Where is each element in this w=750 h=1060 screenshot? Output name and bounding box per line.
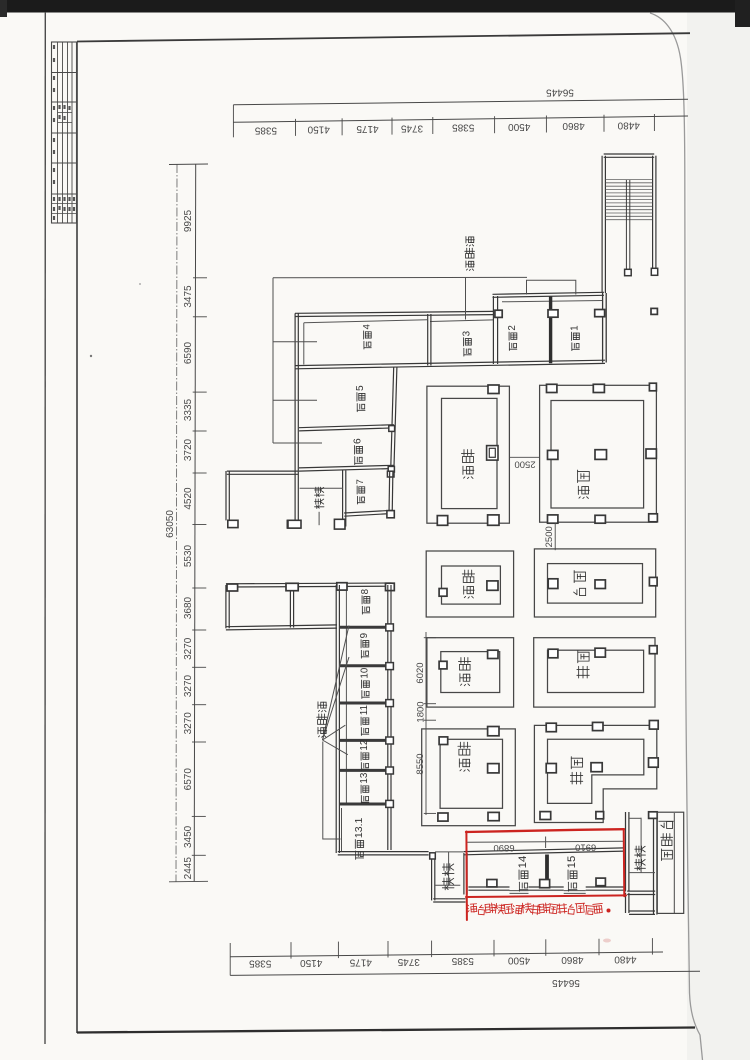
svg-text:3: 3 (462, 330, 473, 336)
svg-text:5385: 5385 (249, 958, 272, 969)
svg-text:6890: 6890 (493, 842, 514, 853)
svg-text:4520: 4520 (183, 487, 194, 510)
svg-text:5385: 5385 (452, 122, 475, 133)
svg-text:13: 13 (359, 772, 370, 783)
svg-text:6910: 6910 (575, 842, 596, 853)
svg-text:2500: 2500 (514, 459, 535, 470)
svg-text:14: 14 (517, 856, 529, 869)
svg-text:6570: 6570 (183, 768, 194, 791)
svg-text:4480: 4480 (617, 119, 640, 130)
svg-text:4860: 4860 (561, 954, 584, 965)
svg-text:6590: 6590 (183, 341, 194, 364)
svg-text:1: 1 (570, 325, 581, 330)
svg-text:6020: 6020 (415, 662, 426, 683)
svg-text:2445: 2445 (183, 857, 194, 880)
svg-text:4500: 4500 (508, 121, 531, 132)
svg-text:3680: 3680 (183, 596, 194, 619)
svg-text:3270: 3270 (183, 674, 194, 697)
svg-text:6: 6 (353, 438, 364, 444)
svg-text:3450: 3450 (183, 825, 194, 848)
svg-text:12: 12 (359, 740, 370, 751)
svg-text:9: 9 (359, 633, 370, 638)
svg-text:4860: 4860 (562, 120, 585, 131)
svg-text:3335: 3335 (183, 398, 194, 421)
svg-text:2500: 2500 (544, 526, 555, 547)
svg-text:5385: 5385 (451, 955, 474, 966)
svg-text:2: 2 (507, 325, 518, 330)
svg-text:9925: 9925 (183, 209, 194, 232)
svg-text:7: 7 (355, 479, 366, 484)
svg-text:3270: 3270 (183, 637, 194, 660)
svg-text:3720: 3720 (183, 438, 194, 461)
svg-text:56445: 56445 (552, 977, 580, 988)
svg-text:4175: 4175 (349, 956, 372, 967)
svg-text:4175: 4175 (356, 123, 379, 134)
svg-text:4150: 4150 (300, 957, 323, 968)
svg-text:4500: 4500 (507, 955, 530, 966)
svg-text:11: 11 (359, 705, 370, 715)
svg-text:4: 4 (362, 324, 373, 330)
svg-text:4150: 4150 (307, 124, 330, 135)
svg-text:8: 8 (360, 588, 371, 594)
svg-text:13.1: 13.1 (353, 817, 365, 838)
svg-text:3475: 3475 (183, 285, 194, 308)
svg-text:10: 10 (360, 667, 371, 678)
svg-text:3745: 3745 (397, 956, 420, 967)
svg-text:15: 15 (566, 856, 578, 869)
svg-text:8550: 8550 (415, 753, 426, 774)
svg-text:5530: 5530 (183, 544, 194, 567)
svg-text:5385: 5385 (254, 124, 277, 135)
svg-text:63050: 63050 (165, 510, 176, 538)
svg-text:1800: 1800 (415, 701, 426, 722)
svg-text:3745: 3745 (400, 122, 423, 133)
svg-text:3270: 3270 (183, 712, 194, 735)
svg-text:56445: 56445 (546, 87, 574, 98)
svg-text:5: 5 (355, 385, 366, 391)
svg-text:4480: 4480 (614, 953, 637, 964)
